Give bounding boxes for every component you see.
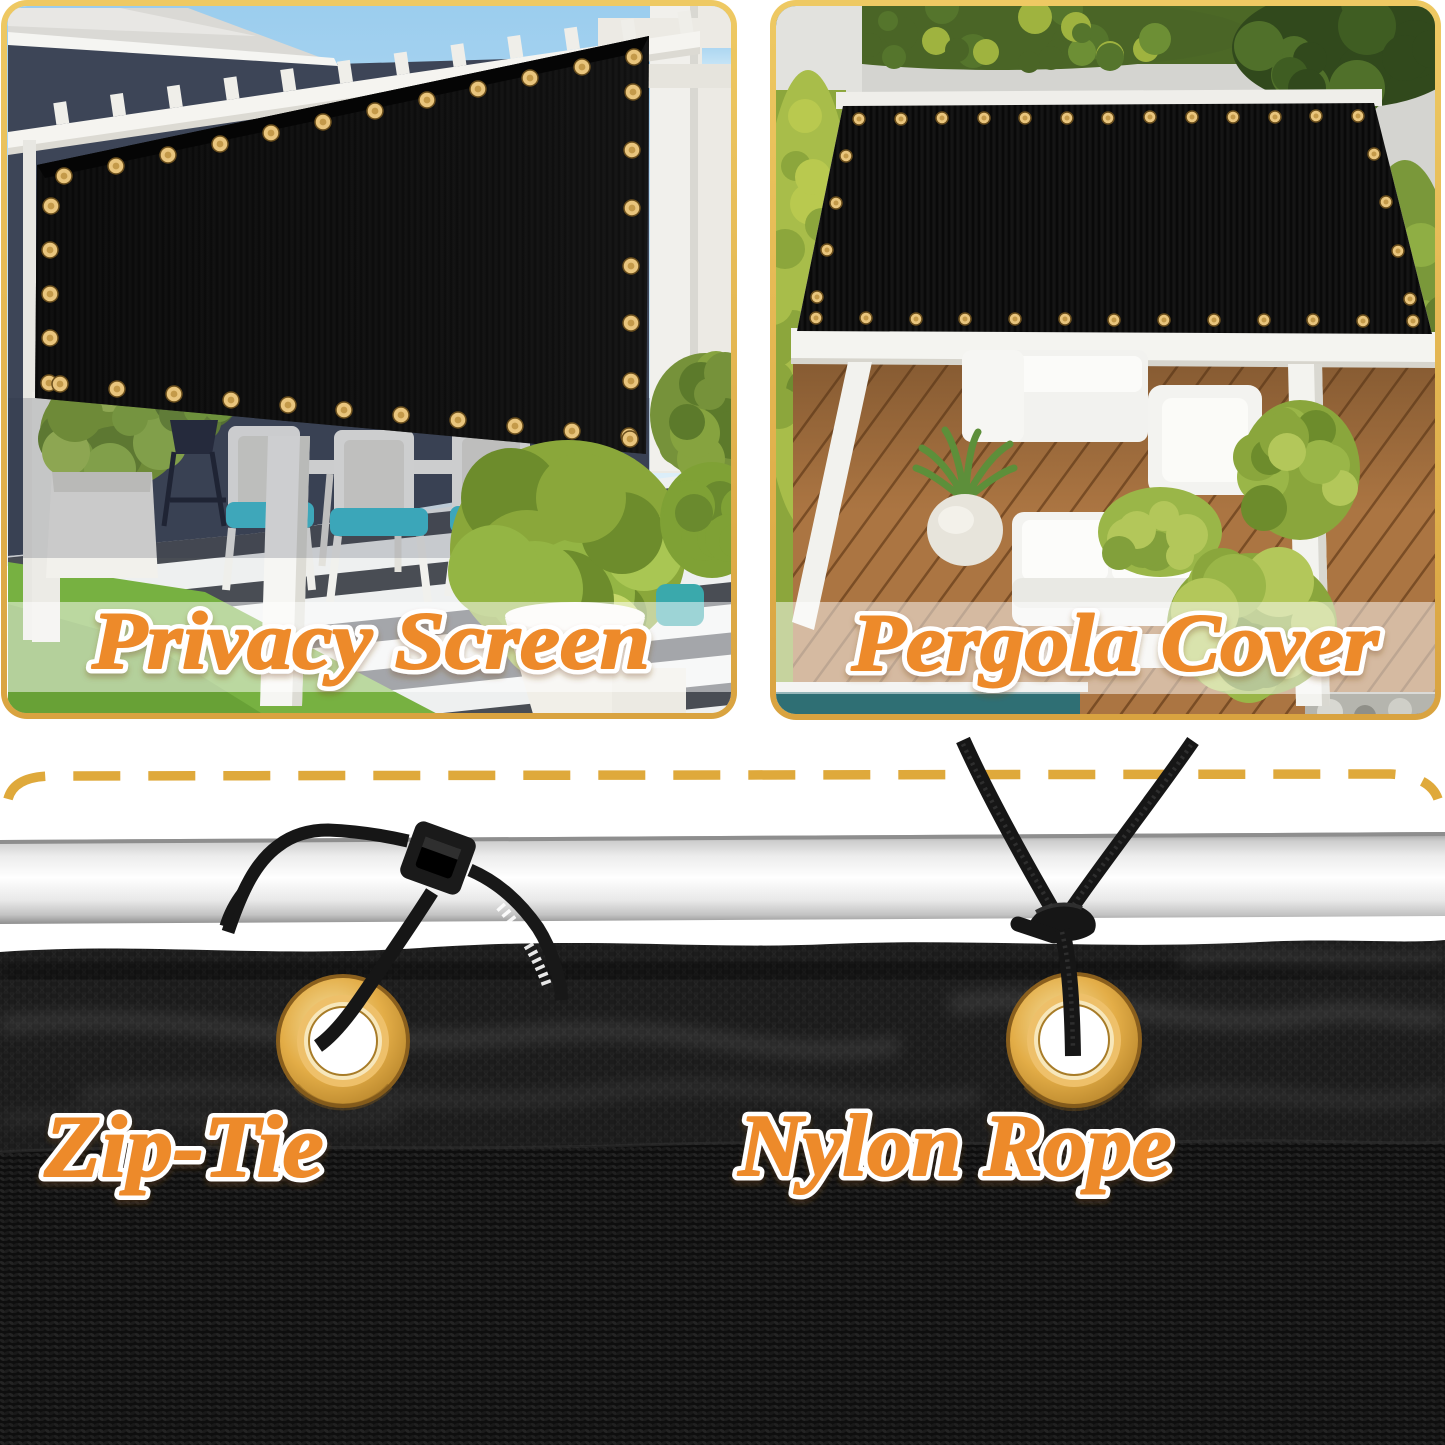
- svg-text:Pergola Cover: Pergola Cover: [850, 597, 1379, 688]
- svg-text:Zip-Tie: Zip-Tie: [43, 1099, 323, 1196]
- svg-text:Privacy Screen: Privacy Screen: [91, 595, 650, 686]
- svg-text:Nylon Rope: Nylon Rope: [737, 1098, 1171, 1195]
